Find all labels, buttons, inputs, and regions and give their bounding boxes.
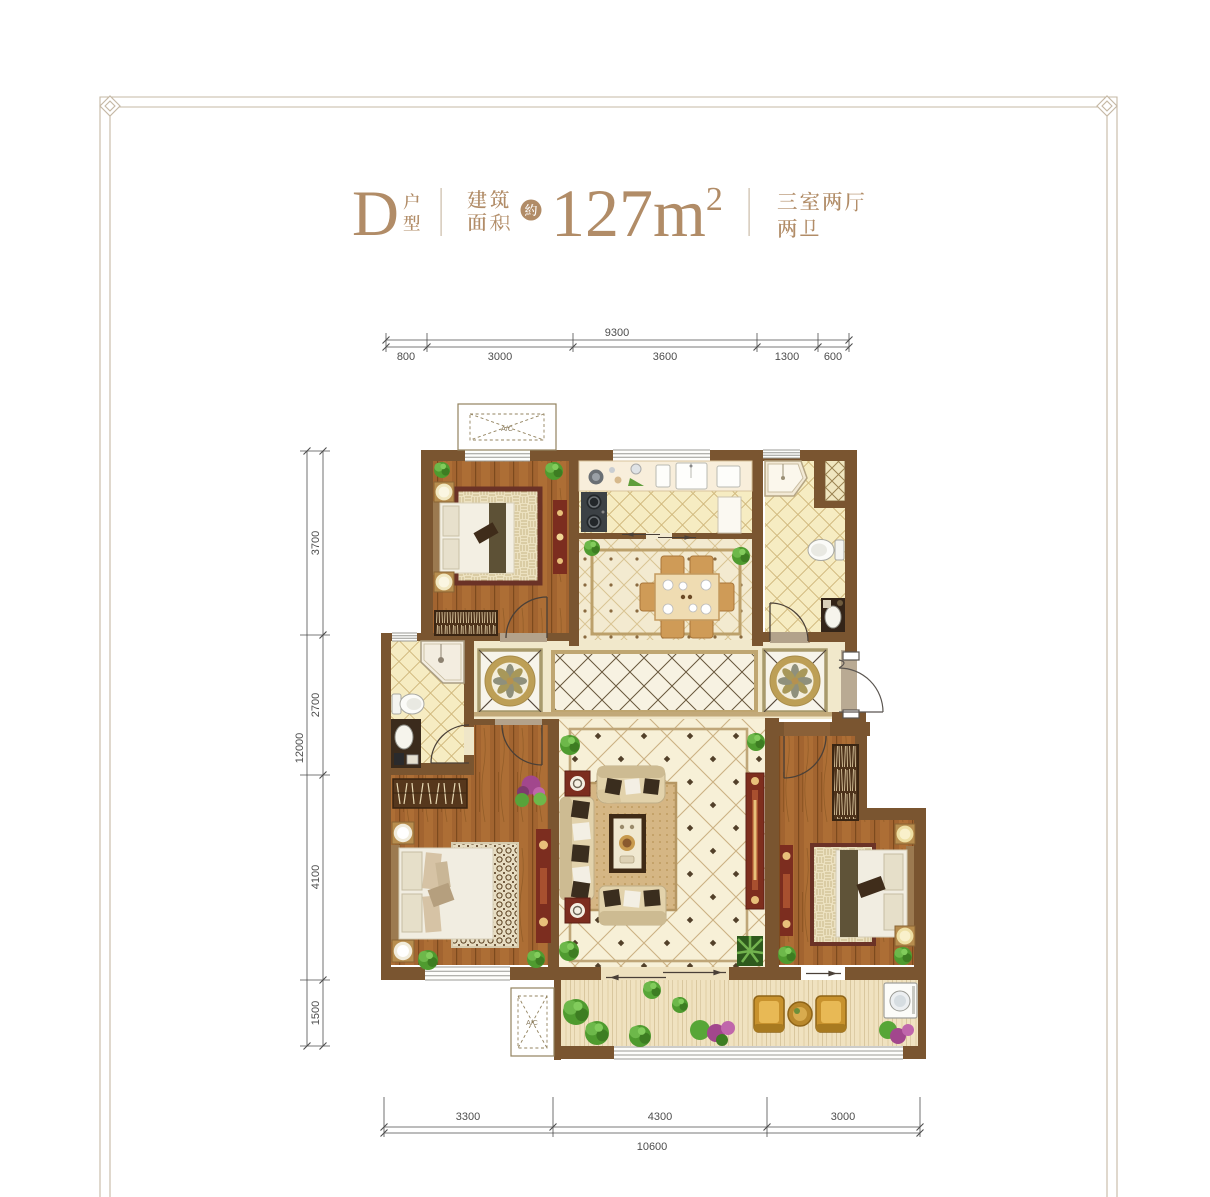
svg-text:4100: 4100 [310,865,322,889]
svg-text:D: D [352,178,399,250]
svg-text:3700: 3700 [310,531,322,555]
svg-text:600: 600 [824,351,842,363]
svg-text:4300: 4300 [648,1111,672,1123]
svg-text:10600: 10600 [637,1141,668,1153]
svg-text:800: 800 [397,351,415,363]
svg-text:12000: 12000 [294,733,306,764]
svg-text:1300: 1300 [775,351,799,363]
svg-text:9300: 9300 [605,327,629,339]
svg-text:A/C: A/C [526,1020,538,1027]
svg-text:3000: 3000 [488,351,512,363]
svg-text:3600: 3600 [653,351,677,363]
svg-text:2700: 2700 [310,693,322,717]
svg-text:1500: 1500 [310,1001,322,1025]
svg-text:127m2: 127m2 [551,175,723,251]
svg-text:A/C: A/C [501,426,513,433]
svg-text:3000: 3000 [831,1111,855,1123]
svg-text:3300: 3300 [456,1111,480,1123]
